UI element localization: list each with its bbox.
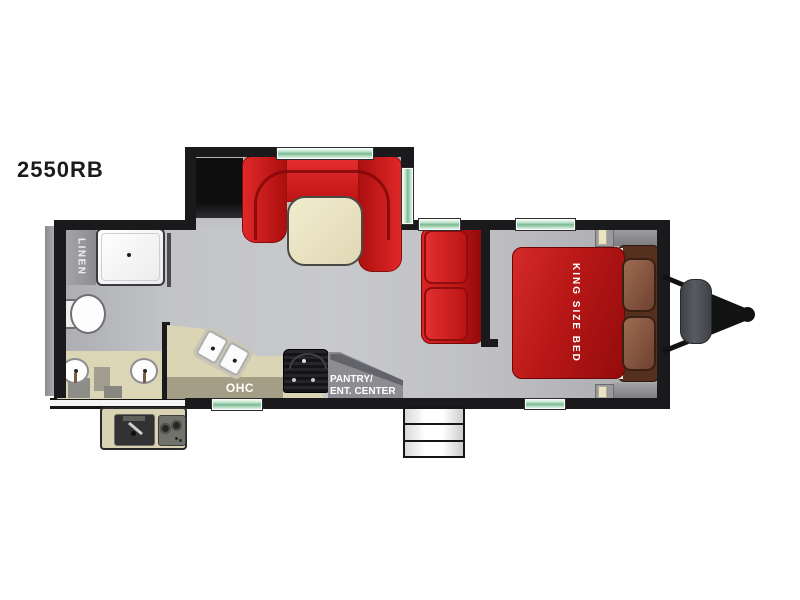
window-kitchen-bottom [212,399,262,410]
step [405,442,463,456]
king-bed-label: KING SIZE BED [520,248,631,378]
outdoor-drain [131,431,136,436]
window-slideout-top [277,148,373,159]
outdoor-stove-icon [158,415,186,446]
vanity-sink-icon [130,358,158,384]
outdoor-knob [175,437,178,440]
wall-rear [54,220,66,398]
pantry-label-line1: PANTRY/ [330,374,396,386]
propane-tank-cover-icon [680,279,712,344]
burner-dot [302,359,306,363]
shower-icon [96,228,165,286]
outdoor-burner [171,420,182,431]
range-icon [283,349,329,393]
overhead-cabinet-label: OHC [210,381,270,395]
dinette-table-icon [287,196,363,266]
window-bedroom-bottom [525,399,565,409]
hitch-ball-icon [740,307,755,322]
toilet-icon [70,294,106,334]
wall-front [657,220,670,409]
step [405,425,463,441]
shower-pan-line [101,233,160,281]
window-slideout-side [402,168,413,224]
outdoor-burner [160,423,171,434]
bedroom-partition-wall [481,221,490,346]
burner-dot [292,378,296,382]
faucet [74,373,77,383]
burner-dot [311,378,315,382]
sofa-cushion [424,287,468,341]
range-arch [289,353,327,369]
window-living-top [419,219,460,230]
slideout-left-wall [185,147,196,230]
outdoor-sink-controls [123,416,145,421]
entry-steps-icon [403,407,465,458]
sofa-icon [421,227,484,344]
bathroom-vanity-counter [57,351,162,399]
outdoor-sink-icon [114,414,155,446]
vanity-cabinet [104,386,122,398]
pantry-label-line2: ENT. CENTER [330,386,396,398]
shower-drain [127,253,131,257]
linen-closet: LINEN [66,228,96,285]
floorplan-2550rb: 2550RB KING SIZE BED LINEN [0,0,800,600]
drain-dot [143,369,147,373]
nightstand-bottom-item [598,386,607,398]
model-number-label: 2550RB [17,157,104,183]
bedroom-partition-stub [481,339,498,347]
sofa-cushion [424,230,468,284]
bed-pillow [622,258,656,312]
faucet [143,373,146,383]
slideout-cabinet-shadow [196,158,243,218]
bed-pillow [622,316,656,371]
rear-bumper [45,226,54,396]
nightstand-top-item [598,228,607,245]
window-bedroom-top [516,219,575,230]
shower-door [167,233,171,287]
drain-dot [74,369,78,373]
step [405,409,463,425]
outdoor-kitchen-icon [100,407,187,450]
wall-top-left [54,220,194,230]
king-bed-icon: KING SIZE BED [512,247,625,379]
linen-label: LINEN [76,238,87,276]
wardrobe-bottom [614,383,658,399]
outdoor-knob [179,439,182,442]
